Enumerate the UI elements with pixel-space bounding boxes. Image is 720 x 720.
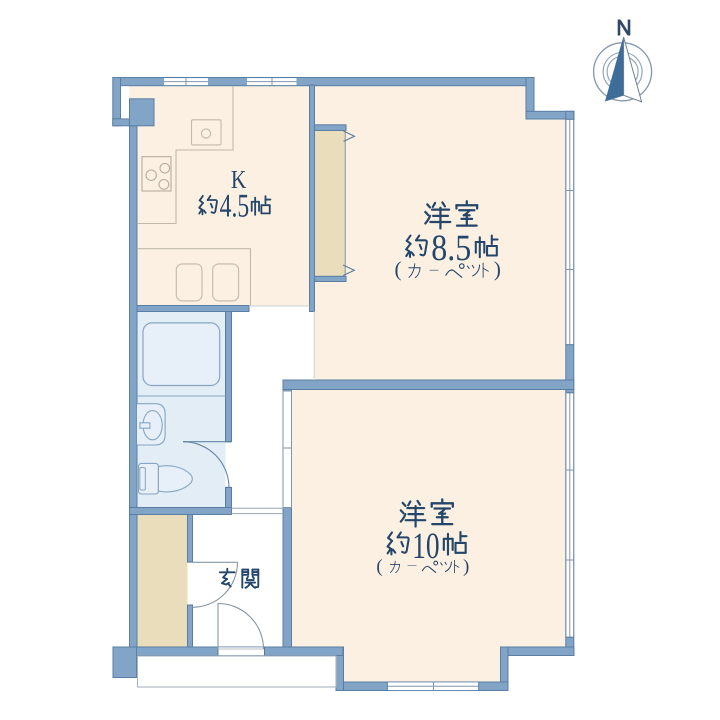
svg-text:(: ( bbox=[395, 257, 402, 281]
svg-text:): ) bbox=[494, 257, 501, 281]
svg-text:4.5: 4.5 bbox=[220, 189, 250, 225]
svg-text:8.5: 8.5 bbox=[431, 228, 471, 269]
svg-text:(: ( bbox=[376, 557, 382, 577]
svg-text:): ) bbox=[463, 557, 469, 577]
